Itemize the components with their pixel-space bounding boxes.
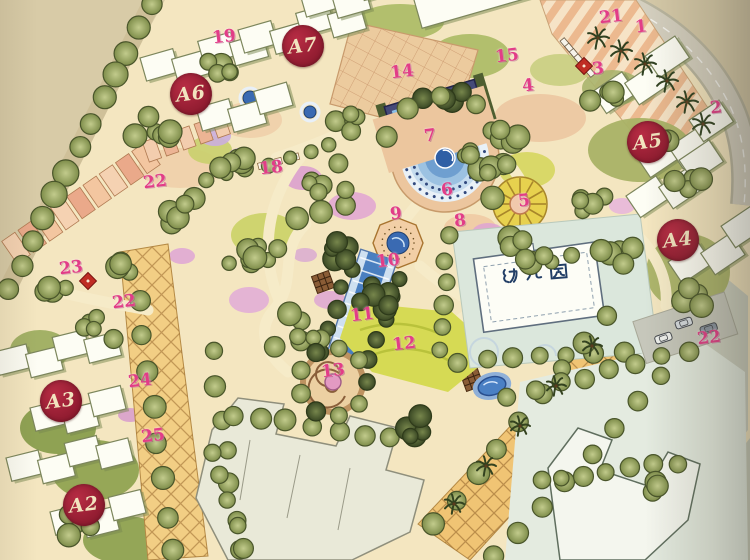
tree (351, 396, 367, 412)
tree (152, 466, 175, 489)
tree (243, 246, 267, 270)
tree (479, 350, 497, 368)
tree (123, 124, 147, 148)
tree (307, 344, 325, 362)
garden-pool (301, 103, 319, 121)
tree (310, 201, 333, 224)
tree (103, 62, 128, 87)
tree (599, 360, 618, 379)
tree (434, 319, 451, 336)
tree (680, 342, 699, 361)
tree (93, 86, 116, 109)
tree (132, 326, 151, 345)
tree (327, 232, 348, 253)
tree (597, 464, 614, 481)
tree (22, 231, 43, 252)
tree (533, 471, 550, 488)
tree (0, 279, 19, 300)
tree (158, 508, 179, 529)
tree (205, 342, 222, 359)
tree (647, 475, 668, 496)
tree (222, 64, 237, 79)
tree (503, 348, 523, 368)
tree (498, 388, 516, 406)
tree (80, 114, 101, 135)
tree (284, 151, 297, 164)
tree (572, 192, 589, 209)
tree (487, 439, 507, 459)
tree (292, 384, 311, 403)
tree (507, 522, 528, 543)
tree (330, 422, 349, 441)
tree (261, 158, 276, 173)
tree (628, 391, 648, 411)
tree (480, 164, 497, 181)
tree (632, 134, 655, 157)
tree (690, 294, 714, 318)
tree (583, 445, 602, 464)
tree (130, 291, 150, 311)
tree (286, 207, 308, 229)
tree (422, 513, 444, 535)
tree (230, 517, 246, 533)
tree (127, 16, 150, 39)
tree (337, 181, 354, 198)
tree (110, 253, 132, 275)
tree (331, 340, 348, 357)
tree (343, 106, 359, 122)
tree (368, 332, 384, 348)
tree (448, 354, 467, 373)
tree (359, 374, 376, 391)
tree (219, 442, 236, 459)
tree (328, 300, 346, 318)
tree (306, 402, 325, 421)
tree (204, 444, 221, 461)
tree (233, 538, 253, 558)
tree (434, 295, 453, 314)
tree (515, 249, 535, 269)
tree (438, 274, 455, 291)
tree (292, 361, 310, 379)
tree (554, 470, 569, 485)
tree (41, 181, 67, 207)
tree (143, 395, 166, 418)
tree (210, 157, 231, 178)
tree (269, 240, 287, 258)
tree (304, 145, 318, 159)
tree (436, 253, 453, 270)
tree (652, 367, 669, 384)
tree (605, 419, 624, 438)
tree (409, 405, 432, 428)
site-plan-image: 幼儿园 A6A7A5A4A3A2123456789101112131415181… (0, 0, 750, 560)
tree (397, 98, 418, 119)
tree (162, 539, 184, 560)
tree (264, 336, 285, 357)
tree (432, 342, 448, 358)
tree (224, 406, 243, 425)
tree (355, 426, 375, 446)
tree (690, 168, 713, 191)
tree (31, 206, 54, 229)
tree (535, 247, 553, 265)
tree (146, 433, 167, 454)
tree (211, 466, 228, 483)
tree (158, 120, 182, 144)
tree (12, 255, 33, 276)
tree (137, 361, 158, 382)
tree (532, 497, 552, 517)
tree (498, 155, 516, 173)
site-plan-svg (0, 0, 750, 560)
tree (251, 408, 272, 429)
tree (527, 381, 545, 399)
tree (602, 81, 624, 103)
tree (278, 302, 302, 326)
tree (376, 126, 397, 147)
tree (597, 306, 616, 325)
tree (620, 458, 639, 477)
tree (199, 173, 214, 188)
tree (310, 184, 327, 201)
tree (403, 428, 418, 443)
tree (104, 329, 123, 348)
tree (574, 467, 594, 487)
tree (142, 0, 162, 14)
tree (57, 524, 80, 547)
tree (580, 90, 601, 111)
tree (351, 352, 368, 369)
tree (626, 355, 645, 374)
tree (656, 130, 671, 145)
tree (219, 492, 235, 508)
tree (564, 247, 580, 263)
tree (176, 195, 194, 213)
tree (669, 456, 686, 473)
tree (330, 407, 347, 424)
tree (461, 146, 479, 164)
tree (334, 280, 348, 294)
tree (590, 239, 612, 261)
tree (81, 517, 99, 535)
tree (329, 154, 348, 173)
tree (513, 231, 532, 250)
tree (531, 347, 548, 364)
tree (575, 369, 594, 388)
tree (653, 348, 669, 364)
tree (664, 170, 685, 191)
tree (306, 330, 321, 345)
tree (138, 106, 159, 127)
tree (204, 376, 225, 397)
tree (59, 505, 78, 524)
tree (484, 546, 504, 560)
tree (379, 296, 398, 315)
tree (467, 95, 486, 114)
tree (38, 276, 61, 299)
tree (441, 227, 458, 244)
tree (86, 321, 101, 336)
tree (290, 328, 306, 344)
tree (431, 87, 449, 105)
tree (352, 293, 370, 311)
tree (644, 455, 663, 474)
tree (274, 409, 296, 431)
tree (222, 256, 236, 270)
tree (613, 253, 634, 274)
tree (491, 120, 510, 139)
tree (322, 138, 336, 152)
tree (70, 137, 91, 158)
tree (481, 186, 504, 209)
